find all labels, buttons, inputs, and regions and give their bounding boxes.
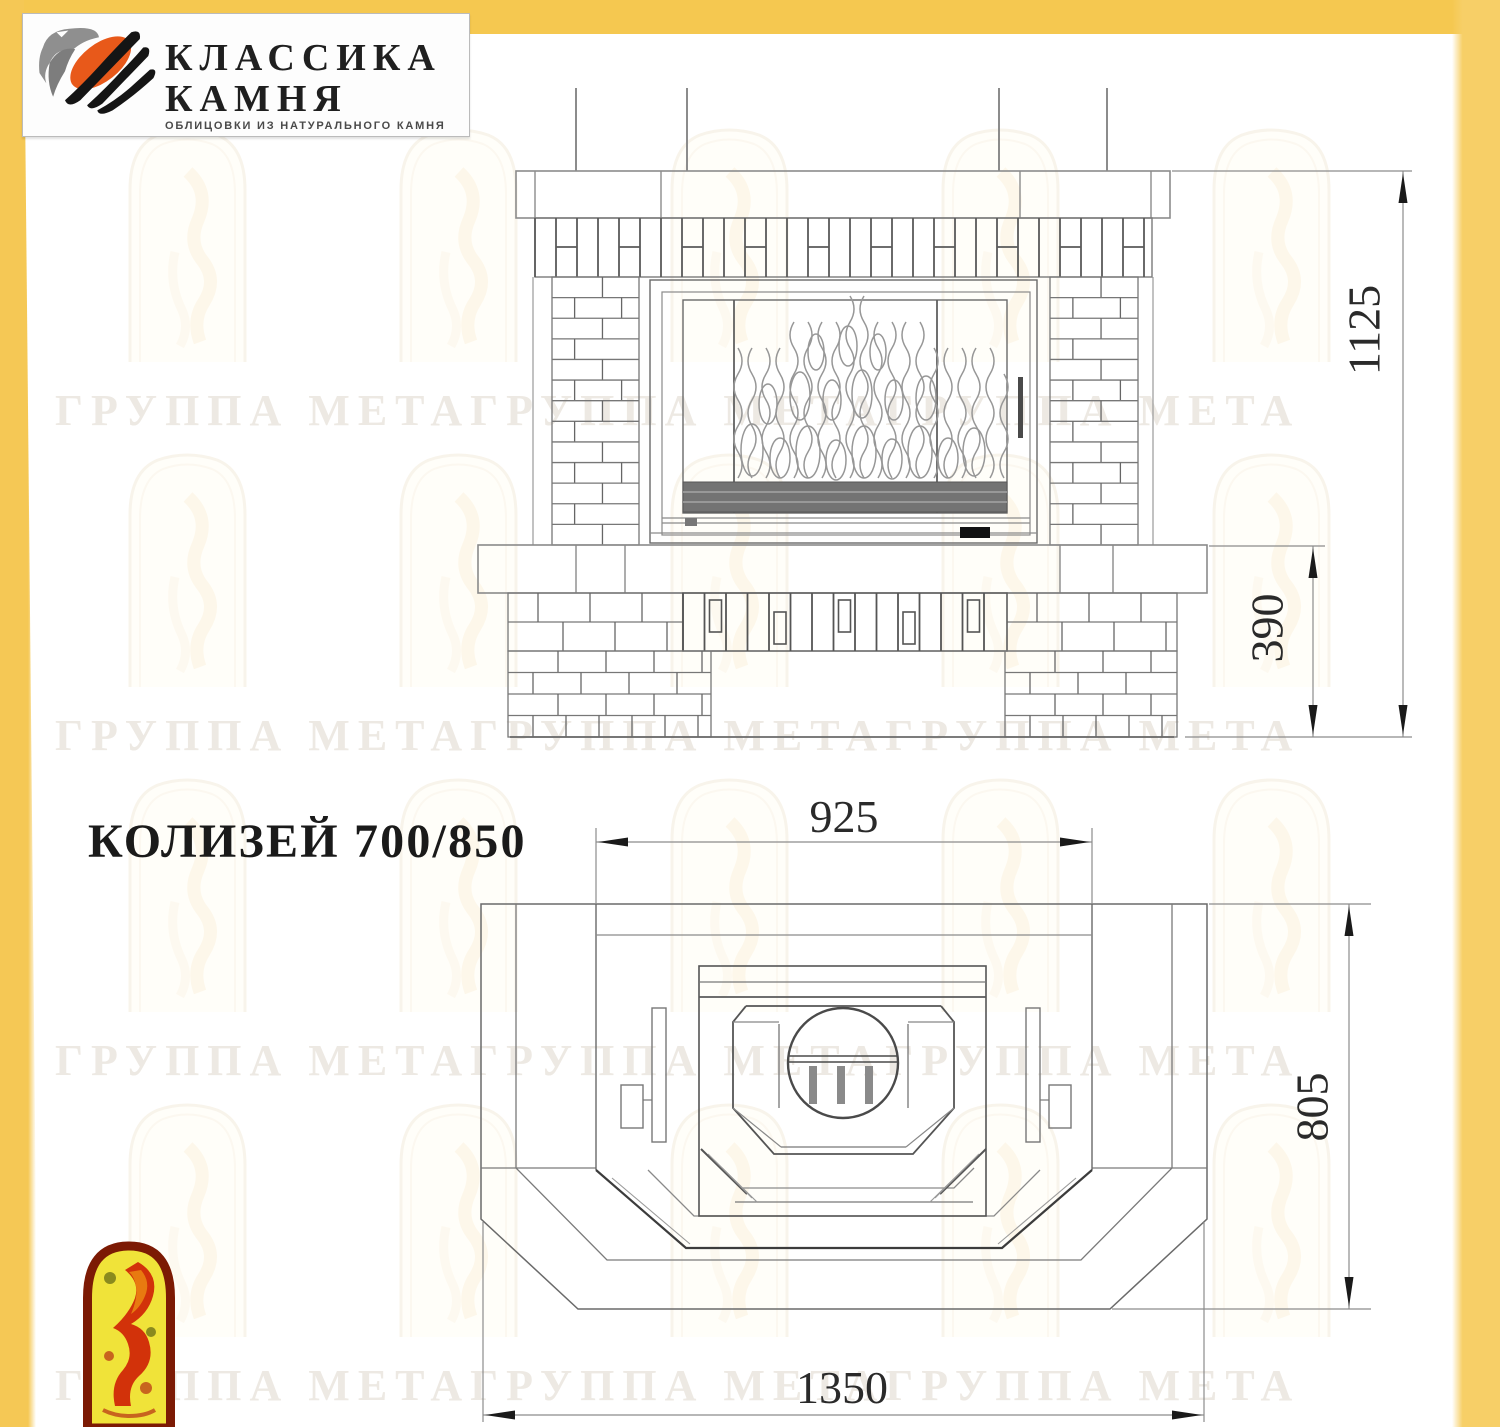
svg-text:925: 925 [810, 791, 879, 842]
svg-text:805: 805 [1287, 1073, 1338, 1142]
svg-text:1350: 1350 [796, 1362, 888, 1413]
svg-text:390: 390 [1242, 594, 1293, 663]
svg-text:1125: 1125 [1339, 285, 1390, 375]
